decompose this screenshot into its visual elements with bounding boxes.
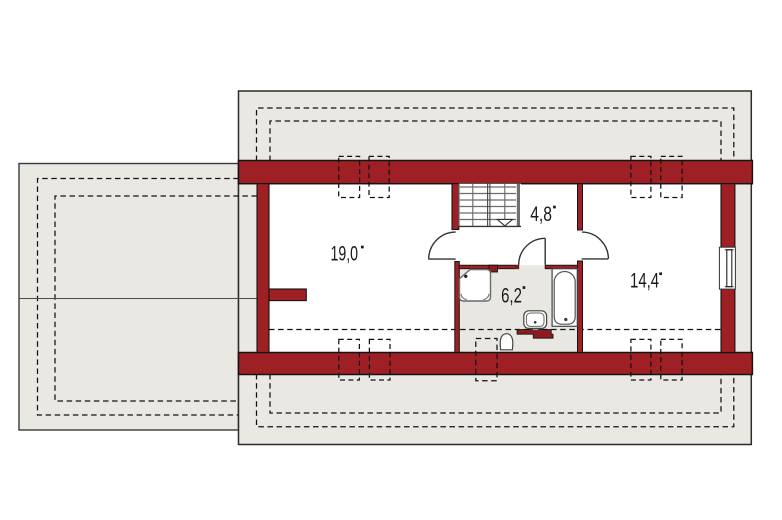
svg-text:14,4: 14,4: [630, 270, 659, 293]
svg-text:4,8: 4,8: [530, 203, 552, 226]
svg-text:6,2: 6,2: [501, 285, 522, 308]
svg-text:19,0: 19,0: [331, 243, 359, 266]
